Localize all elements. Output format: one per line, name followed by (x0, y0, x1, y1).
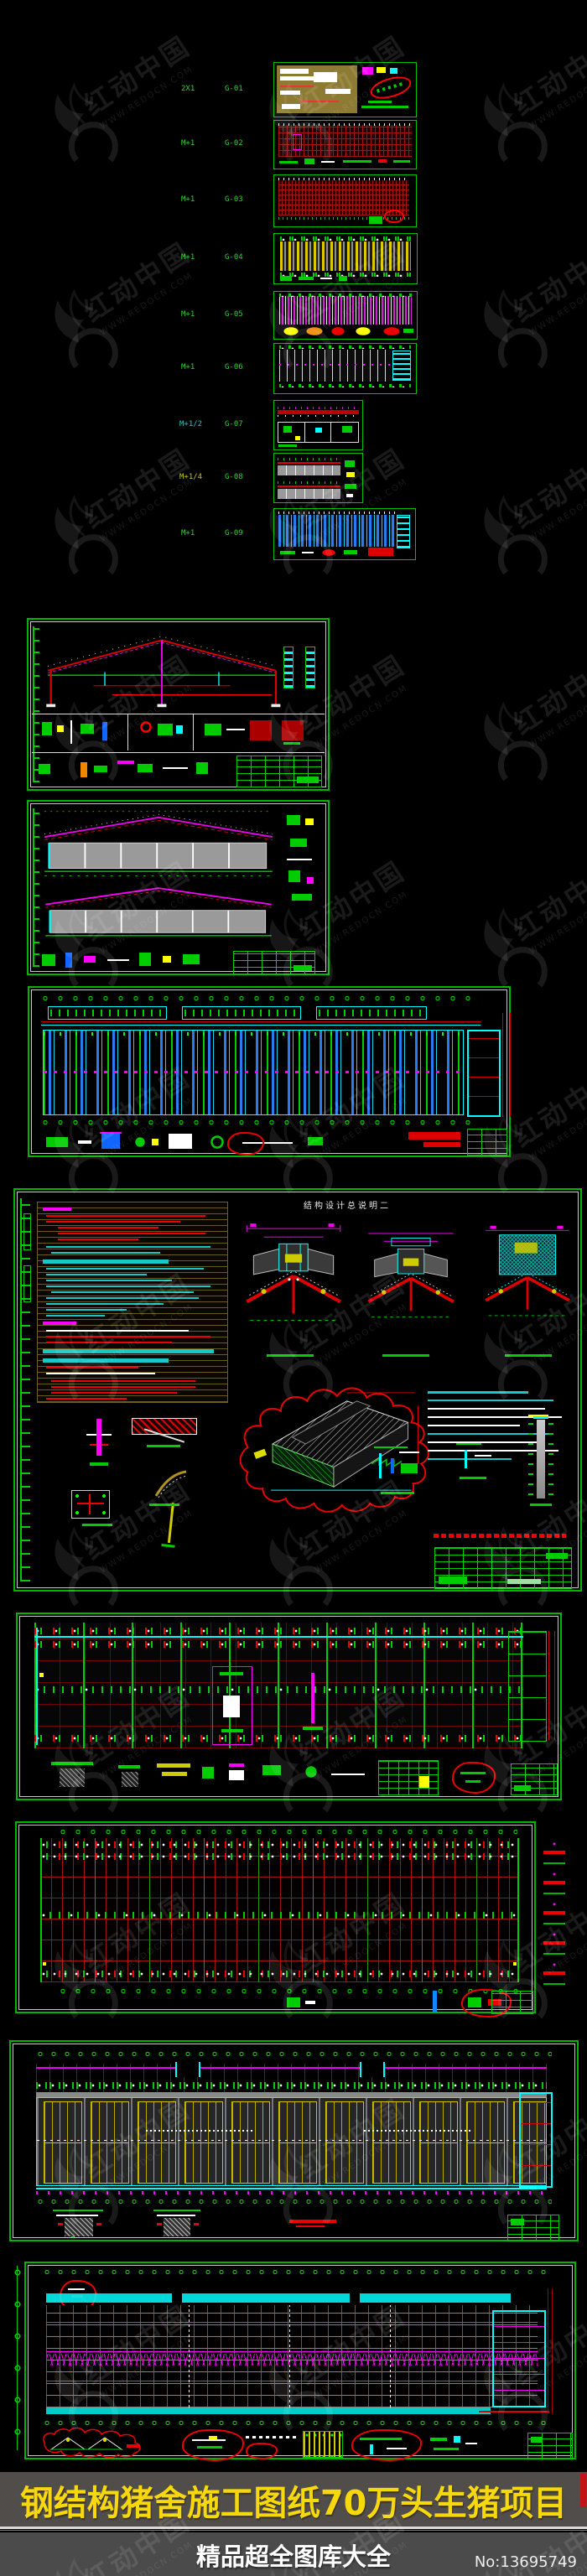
divider-line (193, 714, 194, 750)
red-note-row (289, 2220, 336, 2223)
note-line (46, 1274, 147, 1275)
title-cell (439, 1576, 467, 1584)
note-line (46, 1336, 210, 1337)
sheet-title: 结构设计总说明二 (280, 1198, 414, 1211)
grid-line-cyan (34, 1636, 523, 1638)
mid-dash-row (37, 2140, 546, 2141)
note-line (43, 1358, 169, 1363)
note-line (43, 1207, 71, 1211)
axis-bubbles-row (41, 1119, 472, 1126)
title-cell (297, 776, 319, 783)
pen-group (419, 2101, 458, 2184)
detail-blob (429, 2434, 479, 2454)
divider-line (127, 714, 128, 750)
details-column (343, 459, 360, 497)
divider-shadow-line (0, 2530, 587, 2531)
note-line (46, 1303, 164, 1305)
sheet-roof-bracing-plan (24, 2262, 576, 2459)
pile-details-column (543, 1841, 565, 1992)
gable-detail-block (303, 2431, 343, 2458)
pen-group (231, 2101, 270, 2184)
column-detail (283, 647, 293, 688)
title-block (527, 2433, 573, 2459)
pen-group (91, 2101, 129, 2184)
sheet-thumbnail-g05 (273, 291, 418, 340)
caption-bar (267, 1354, 314, 1357)
note-line (43, 1349, 214, 1353)
row-code-label: M+1/2 (179, 420, 202, 429)
detail-grid (278, 422, 359, 443)
footer-bar: 精品超全图库大全 No:13695749 (0, 2532, 587, 2576)
dim-line (246, 2436, 296, 2438)
eave-detail-cluster (371, 1441, 429, 1502)
banner-title: 钢结构猪舍施工图纸70万头生猪项目 (20, 2475, 567, 2525)
row-code-label: M+1 (181, 529, 195, 538)
canopy-strip (48, 1006, 167, 1020)
end-room-block (519, 2092, 553, 2188)
pen-group (184, 2101, 223, 2184)
axis-symbols-row (280, 236, 411, 241)
caption-bar (147, 1445, 180, 1447)
plan-grid (40, 1838, 519, 1982)
caption-bar (278, 444, 297, 447)
divider-line (0, 2527, 587, 2529)
note-line (51, 1392, 177, 1394)
title-cell (514, 1785, 531, 1791)
caption-bar (382, 1354, 429, 1357)
interior-detail (303, 1673, 323, 1737)
axis-bubbles-row (36, 2050, 552, 2058)
footing-section-detail (150, 2208, 217, 2240)
note-line (51, 1386, 195, 1388)
footing-section-detail (48, 2208, 123, 2240)
mid-dash-row (279, 364, 391, 366)
note-line (46, 1221, 180, 1223)
row-code-label: M+1/4 (179, 473, 202, 482)
column-symbols-row (36, 2082, 547, 2089)
row-code-label: M+1 (181, 363, 195, 372)
column-symbols-row (34, 1735, 523, 1742)
base-plate-detail (71, 1490, 110, 1519)
revision-cloud (351, 2429, 422, 2461)
row-sheet-label: G-06 (225, 363, 243, 372)
highlight-detail-box (212, 1666, 252, 1745)
note-line (46, 1398, 127, 1400)
note-line (51, 1380, 195, 1382)
bracing-vertical (189, 2305, 190, 2407)
purlin-detail (86, 1419, 112, 1469)
note-line (46, 1280, 172, 1281)
axis-bubbles-column (13, 2266, 22, 2450)
sheet-thumbnail-g04 (273, 233, 418, 284)
vent-gap (175, 2062, 200, 2077)
truss-zigzag-row (46, 2354, 538, 2366)
caption-bar (82, 1524, 112, 1526)
column-symbols-row (40, 1971, 519, 1977)
column-symbols-row (34, 1641, 523, 1648)
detail-cluster (37, 717, 124, 749)
ridge-vent-detail (238, 1222, 349, 1346)
axis-table (23, 1213, 31, 1250)
white-dots-row (146, 2130, 255, 2132)
title-block (511, 1763, 558, 1795)
revision-cloud (452, 1762, 496, 1794)
purlin-stripes-pattern (279, 296, 412, 325)
ridge-vent-detail (478, 1218, 577, 1346)
title-block (236, 756, 322, 787)
edge-line-cyan (36, 1628, 38, 1745)
title-block-red (368, 548, 393, 556)
mid-dash-row (44, 1071, 463, 1073)
detail-bar-blue (433, 1991, 437, 2012)
notes-text-panel (277, 65, 357, 113)
title-block (507, 2215, 559, 2241)
divider-line (32, 752, 325, 753)
corner-mark-yellow (39, 1673, 44, 1677)
red-edge-fragment (580, 2474, 586, 2507)
corner-mark-yellow (43, 1962, 46, 1966)
red-axis-lines (502, 1013, 511, 1117)
sheet-thumbnail-g01 (273, 62, 417, 117)
elevation-band (278, 405, 359, 418)
pen-group (372, 2101, 411, 2184)
row-sheet-label: G-04 (225, 253, 243, 262)
pen-group (325, 2101, 364, 2184)
eave-detail-cluster (451, 1436, 501, 1487)
title-cell (507, 1579, 541, 1584)
purlin-dots-row (278, 178, 409, 180)
vent-gap (360, 2062, 385, 2077)
detail-blob (285, 1994, 319, 2011)
frame-lines-pattern (279, 350, 391, 382)
axis-symbols-row (279, 384, 411, 387)
sheet-pen-floor-plan (9, 2040, 579, 2241)
grid-line-red (41, 1021, 481, 1022)
row-code-label: M+1 (181, 310, 195, 319)
note-line (46, 1215, 205, 1217)
red-axis-lines (548, 2288, 553, 2414)
note-line (58, 1239, 138, 1240)
title-cell (531, 2437, 543, 2443)
pen-group (44, 2101, 82, 2184)
column-symbols-row (40, 1841, 519, 1848)
title-block (467, 1129, 507, 1156)
sheet-thumbnail-g08 (273, 453, 363, 503)
red-axis-lines (548, 1631, 555, 1740)
row-sheet-label: G-07 (225, 420, 243, 429)
pen-group (278, 2101, 317, 2184)
grid-line-cyan (41, 1025, 481, 1026)
axis-symbols-row (279, 293, 412, 297)
end-room-block (508, 1631, 547, 1742)
cyan-band (46, 2293, 172, 2303)
row-code-label: M+1 (181, 253, 195, 262)
revision-cloud (246, 2443, 278, 2459)
note-line (43, 1322, 76, 1325)
pen-area (43, 1030, 464, 1115)
sheet-thumbnail-g09 (273, 508, 416, 560)
magenta-line (36, 2067, 547, 2069)
revision-cloud (227, 1132, 264, 1156)
ridge-vent-detail (361, 1222, 461, 1346)
axis-symbols-row (279, 345, 411, 349)
revision-cloud (182, 2429, 244, 2461)
cad-collage-canvas: 2X1 G-01 M+1 G-02 M+1 G-03 M+1 G-04 M+1 … (0, 0, 587, 2576)
schedule-table (378, 1760, 439, 1795)
detail-cluster (132, 717, 190, 749)
row-sheet-label: G-03 (225, 195, 243, 205)
caption-bar (149, 1504, 179, 1506)
slender-column-detail (161, 1502, 179, 1550)
end-room-block (467, 1030, 501, 1117)
highlight-oval-icon (368, 73, 413, 103)
bracing-stripes-pattern (280, 241, 411, 271)
note-line (51, 1291, 194, 1293)
roof-truss-elevation (39, 807, 278, 882)
column-symbols-row (34, 1686, 523, 1693)
pen-group (138, 2101, 176, 2184)
purlin-dots-row (278, 123, 412, 126)
details-strip (278, 274, 379, 282)
axis-bubbles-row (41, 995, 472, 1002)
bracing-vertical (289, 2305, 290, 2407)
row-sheet-label: G-09 (225, 529, 243, 538)
title-cell (546, 1553, 568, 1559)
axis-table (23, 1265, 31, 1302)
row-code-label: 2X1 (181, 85, 195, 94)
cover-figures-panel (360, 65, 413, 113)
title-block-red (408, 1132, 460, 1140)
details-strip (278, 158, 413, 167)
sheet-thumbnail-g07 (273, 400, 363, 450)
footer-item-number: No:13695749 (475, 2553, 577, 2571)
note-line (46, 1367, 138, 1368)
cyan-band (360, 2293, 511, 2303)
sheet-truss-details-2 (27, 800, 330, 975)
cold-formed-profile-detail (152, 1466, 190, 1499)
white-dots-row (364, 2130, 473, 2132)
roof-truss-elevation (39, 882, 278, 948)
axis-bubbles-row (43, 2268, 554, 2276)
highlight-oval-icon (384, 210, 404, 223)
truss-strip (278, 481, 340, 501)
row-code-label: M+1 (181, 139, 195, 148)
pen-group (466, 2101, 505, 2184)
column-detail (305, 647, 315, 688)
detail-cluster (40, 949, 221, 973)
mullion-detail (522, 1416, 562, 1510)
details-strip (278, 548, 371, 558)
details-strip (43, 1758, 378, 1794)
details-strip (278, 325, 413, 337)
plan-grid (34, 1623, 523, 1748)
truss-detail-cloud (39, 2428, 175, 2458)
red-note-row (434, 1534, 566, 1538)
bracing-vertical (390, 2305, 391, 2407)
detail-cluster (201, 717, 319, 749)
stair-block (392, 351, 411, 381)
title-block (434, 1547, 572, 1589)
title-block (491, 1991, 533, 2014)
sheet-thumbnail-g02 (273, 120, 417, 169)
note-line (46, 1246, 210, 1248)
pen-area (36, 2097, 547, 2186)
magenta-ticks-row (36, 2191, 547, 2194)
roof-truss-elevation (40, 625, 283, 712)
drawing-list: 2X1 G-01 M+1 G-02 M+1 G-03 M+1 G-04 M+1 … (0, 0, 587, 579)
axis-bubbles-row (59, 1828, 517, 1836)
sheet-thumbnail-g03 (273, 174, 417, 227)
note-line (58, 1227, 158, 1228)
column-symbols-row (40, 1853, 519, 1860)
title-cell (511, 2219, 524, 2225)
cyan-band (182, 2293, 350, 2303)
note-line (46, 1285, 210, 1287)
sheet-foundation-plan (15, 1821, 536, 2013)
detail-cluster (282, 810, 325, 911)
axis-bubbles-row (36, 2198, 552, 2205)
top-dots-row (44, 1032, 463, 1036)
canopy-strip (316, 1006, 427, 1020)
note-line (46, 1342, 172, 1343)
end-room-block (492, 2310, 546, 2407)
column-symbols-row (34, 1628, 523, 1634)
note-line (46, 1330, 189, 1332)
sheet-thumbnail-g06 (273, 343, 417, 394)
detail-blob (369, 216, 382, 224)
axis-bubbles-row (43, 2419, 554, 2427)
sheet-column-plan (16, 1613, 562, 1800)
row-code-label: M+1 (181, 195, 195, 205)
note-line (46, 1297, 199, 1299)
stair-block (397, 515, 410, 548)
note-line (46, 1315, 105, 1317)
row-sheet-label: G-02 (225, 139, 243, 148)
red-note-row (296, 2225, 325, 2227)
sheet-pen-layout-plan (28, 986, 511, 1157)
row-sheet-label: G-08 (225, 473, 243, 482)
title-block (233, 951, 315, 974)
canopy-strip (182, 1006, 301, 1020)
note-line (58, 1233, 205, 1234)
row-sheet-label: G-05 (225, 310, 243, 319)
grid-line-red (479, 2411, 549, 2412)
title-block-red (423, 1142, 460, 1147)
truss-strip (278, 458, 340, 477)
edge-line-green (40, 1838, 42, 1982)
highlight-cell (419, 1776, 429, 1788)
note-line (46, 1268, 204, 1270)
row-sheet-label: G-01 (225, 85, 243, 94)
divider-line (32, 714, 325, 714)
corner-mark-yellow (513, 1962, 517, 1966)
axis-strip (20, 1198, 30, 1581)
note-line (51, 1252, 160, 1254)
caption-bar (505, 1354, 552, 1357)
highlight-box-icon (293, 134, 302, 150)
note-line (46, 1309, 127, 1311)
title-banner: 钢结构猪舍施工图纸70万头生猪项目 (0, 2472, 587, 2527)
grid-line-cyan (36, 2188, 547, 2189)
purlin-dots-row (278, 512, 395, 514)
note-line (43, 1259, 169, 1264)
notes-text-panel (37, 1202, 228, 1403)
bracing-grid (46, 2305, 538, 2407)
sheet-general-notes: 结构设计总说明二 (13, 1188, 582, 1592)
detail-cluster (37, 757, 221, 786)
cyan-band (46, 2407, 491, 2414)
pen-bars-pattern (278, 515, 395, 547)
title-cell (293, 965, 312, 971)
hatched-beam (132, 1418, 197, 1435)
edge-line-green (517, 1838, 519, 1982)
details-strip (41, 1130, 402, 1156)
note-line (46, 1373, 155, 1374)
sheet-truss-details-1 (27, 618, 330, 791)
column-symbols-row (40, 1912, 519, 1919)
beam-detail (132, 1415, 197, 1448)
